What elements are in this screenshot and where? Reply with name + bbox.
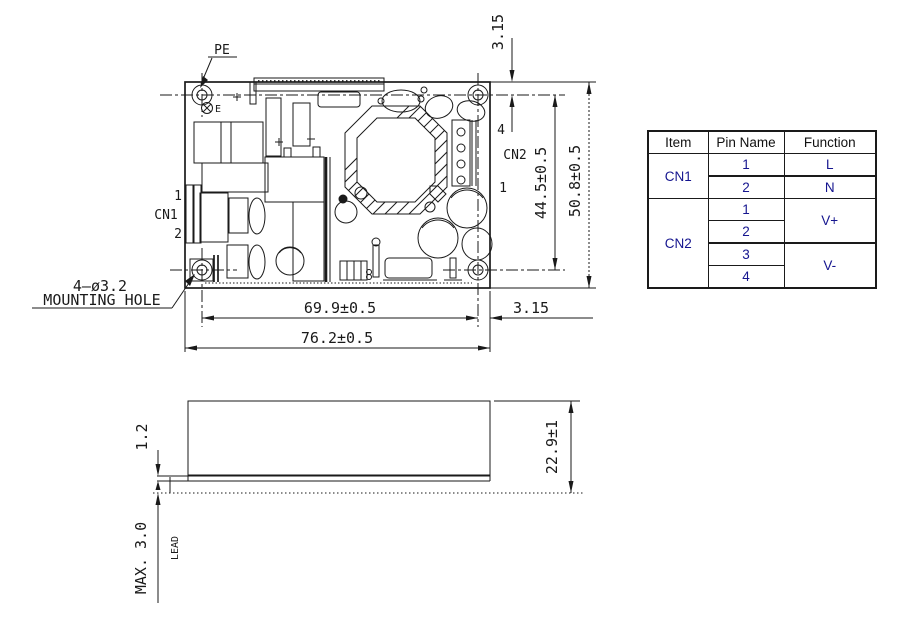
table-row: CN1 1 L [648, 154, 876, 177]
cn1-pin2-label: 2 [174, 227, 182, 242]
cn2-connector [452, 120, 476, 186]
dim-hole-pitch-horizontal: 69.9±0.5 [202, 299, 478, 321]
dim-pcb-thickness: 1.2 [133, 423, 161, 490]
side-view: 1.2 MAX. 3.0 LEAD 22.9±1 [132, 401, 583, 603]
svg-text:3.15: 3.15 [513, 299, 549, 317]
cn2-pin2-cell: 2 [708, 221, 784, 244]
cn2-pin3-cell: 3 [708, 243, 784, 266]
polarity-marks [233, 93, 315, 146]
dim-overall-height: 22.9±1 [494, 401, 580, 493]
svg-text:76.2±0.5: 76.2±0.5 [301, 329, 373, 347]
cn1-pin2-cell: 2 [708, 176, 784, 199]
mounting-hole-note-line2: MOUNTING HOLE [43, 291, 160, 309]
dim-hole-edge-offset-right: 3.15 [490, 299, 593, 321]
dim-lead-max: MAX. 3.0 LEAD [132, 493, 181, 603]
cn2-label: CN2 [503, 148, 526, 163]
cn2-function-vminus-cell: V- [784, 243, 876, 288]
svg-text:1.2: 1.2 [133, 423, 151, 450]
earth-label: E [215, 104, 221, 115]
center-transformer-block [265, 157, 330, 282]
top-view-dimensions: 3.15 44.5±0.5 50.8±0.5 69.9±0.5 [185, 14, 596, 352]
drawing-canvas: PE E CN1 1 2 CN2 4 1 4—ø3.2 MOUNTING HOL… [0, 0, 924, 620]
cn1-function-l-cell: L [784, 154, 876, 177]
table-header-pin-name: Pin Name [708, 131, 784, 154]
table-header-row: Item Pin Name Function [648, 131, 876, 154]
cn1-connector [186, 185, 201, 243]
pe-label: PE [214, 43, 230, 58]
table-header-item: Item [648, 131, 708, 154]
dim-hole-edge-offset-top: 3.15 [489, 14, 515, 132]
top-view-labels: PE E CN1 1 2 CN2 4 1 4—ø3.2 MOUNTING HOL… [32, 43, 527, 309]
cn1-pin1-cell: 1 [708, 154, 784, 177]
cn2-pin4-cell: 4 [708, 266, 784, 289]
cn1-pin1-label: 1 [174, 189, 182, 204]
datasheet-mechanical-drawing: PE E CN1 1 2 CN2 4 1 4—ø3.2 MOUNTING HOL… [0, 0, 924, 620]
cn2-pin1-cell: 1 [708, 199, 784, 221]
svg-text:MAX. 3.0: MAX. 3.0 [132, 522, 150, 594]
svg-text:3.15: 3.15 [489, 14, 507, 50]
svg-text:50.8±0.5: 50.8±0.5 [566, 145, 584, 217]
svg-text:22.9±1: 22.9±1 [543, 420, 561, 474]
cn2-item-cell: CN2 [648, 199, 708, 289]
cn1-function-n-cell: N [784, 176, 876, 199]
table-header-function: Function [784, 131, 876, 154]
svg-text:44.5±0.5: 44.5±0.5 [532, 147, 550, 219]
cn1-item-cell: CN1 [648, 154, 708, 199]
lead-label: LEAD [170, 536, 181, 560]
output-capacitors [276, 186, 492, 275]
dim-board-height: 50.8±0.5 [566, 82, 592, 288]
cn2-pin4-label: 4 [497, 123, 505, 138]
dim-hole-pitch-vertical: 44.5±0.5 [532, 95, 558, 270]
middle-capacitors [233, 93, 320, 157]
table-row: CN2 1 V+ [648, 199, 876, 221]
cn2-function-vplus-cell: V+ [784, 199, 876, 244]
dim-board-width: 76.2±0.5 [185, 329, 490, 351]
cn1-label: CN1 [154, 208, 177, 223]
pin-function-table: Item Pin Name Function CN1 1 L 2 N CN2 1… [647, 130, 877, 289]
svg-text:69.9±0.5: 69.9±0.5 [304, 299, 376, 317]
cn2-pin1-label: 1 [499, 181, 507, 196]
